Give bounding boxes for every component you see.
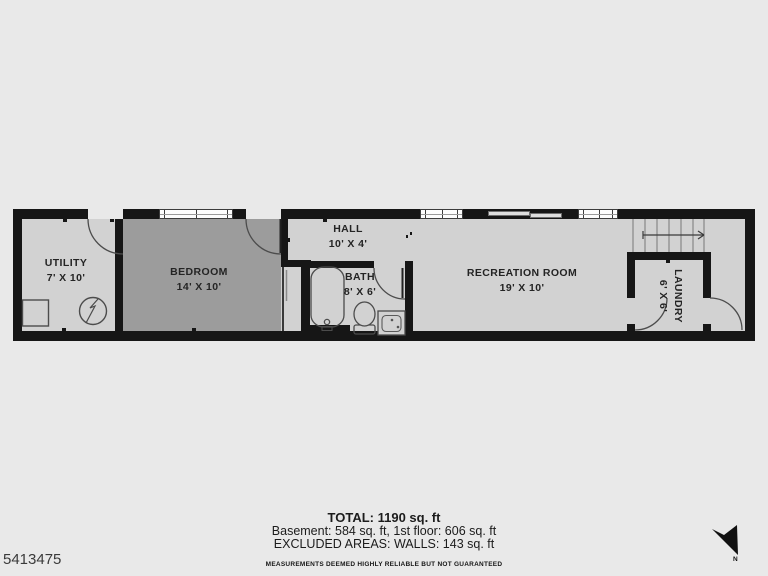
- window-bedroom: [159, 209, 233, 219]
- door-jamb-tick: [192, 328, 196, 331]
- room-name: UTILITY: [26, 256, 106, 271]
- wall-laundry-left: [627, 260, 635, 298]
- window-low-segment-a: [488, 211, 530, 216]
- room-label-laundry: LAUNDRY 6' X 6': [651, 261, 685, 331]
- floor-plan-page: UTILITY 7' X 10' BEDROOM 14' X 10' HALL …: [0, 0, 768, 576]
- disclaimer-text: MEASUREMENTS DEEMED HIGHLY RELIABLE BUT …: [0, 558, 768, 572]
- room-dims: 6' X 6': [655, 261, 670, 331]
- room-dims: 10' X 4': [308, 237, 388, 252]
- room-label-recreation: RECREATION ROOM 19' X 10': [442, 266, 602, 296]
- wall-bath-right: [405, 261, 413, 331]
- wall-closet-thin: [282, 267, 284, 331]
- wall-utility-bedroom: [115, 219, 123, 331]
- room-dims: 7' X 10': [26, 271, 106, 286]
- door-jamb-tick: [519, 216, 522, 219]
- room-label-utility: UTILITY 7' X 10': [26, 256, 106, 286]
- window-glass-line: [579, 214, 617, 215]
- room-name: BATH: [331, 270, 389, 285]
- listing-id: 5413475: [3, 551, 61, 568]
- room-name: RECREATION ROOM: [442, 266, 602, 281]
- area-summary: TOTAL: 1190 sq. ft Basement: 584 sq. ft,…: [0, 511, 768, 571]
- wall-bath-top: [301, 261, 374, 268]
- excluded-areas-text: EXCLUDED AREAS: WALLS: 143 sq. ft: [0, 538, 768, 552]
- area-breakdown-text: Basement: 584 sq. ft, 1st floor: 606 sq.…: [0, 525, 768, 539]
- room-label-bedroom: BEDROOM 14' X 10': [149, 265, 249, 295]
- door-opening-bedroom: [246, 209, 281, 219]
- room-dims: 19' X 10': [442, 281, 602, 296]
- wall-laundry-right-nub: [703, 324, 711, 331]
- door-opening-utility: [88, 209, 123, 219]
- wall-laundry-left-nub: [627, 324, 635, 331]
- room-dims: 8' X 6': [331, 285, 389, 300]
- window-glass-line: [421, 214, 462, 215]
- door-jamb-tick: [287, 238, 290, 242]
- wall-end-mark: [410, 232, 412, 235]
- north-label: N: [733, 556, 738, 563]
- wall-end-mark: [406, 235, 408, 238]
- wall-tub-stub: [301, 325, 350, 331]
- room-label-hall: HALL 10' X 4': [308, 222, 388, 252]
- window-hall: [420, 209, 463, 219]
- window-glass-line: [160, 214, 232, 215]
- wall-laundry-right: [703, 260, 711, 298]
- room-name: HALL: [308, 222, 388, 237]
- door-jamb-tick: [19, 236, 22, 241]
- room-dims: 14' X 10': [149, 280, 249, 295]
- room-label-bath: BATH 8' X 6': [331, 270, 389, 300]
- room-name: BEDROOM: [149, 265, 249, 280]
- window-recreation: [578, 209, 618, 219]
- wall-laundry-top: [627, 252, 711, 260]
- window-low-segment-b: [530, 213, 562, 218]
- door-jamb-tick: [110, 219, 114, 222]
- total-area-text: TOTAL: 1190 sq. ft: [0, 511, 768, 525]
- room-name: LAUNDRY: [670, 261, 685, 331]
- door-jamb-tick: [63, 219, 67, 222]
- door-jamb-tick: [62, 328, 66, 331]
- wall-bath-left: [301, 261, 310, 331]
